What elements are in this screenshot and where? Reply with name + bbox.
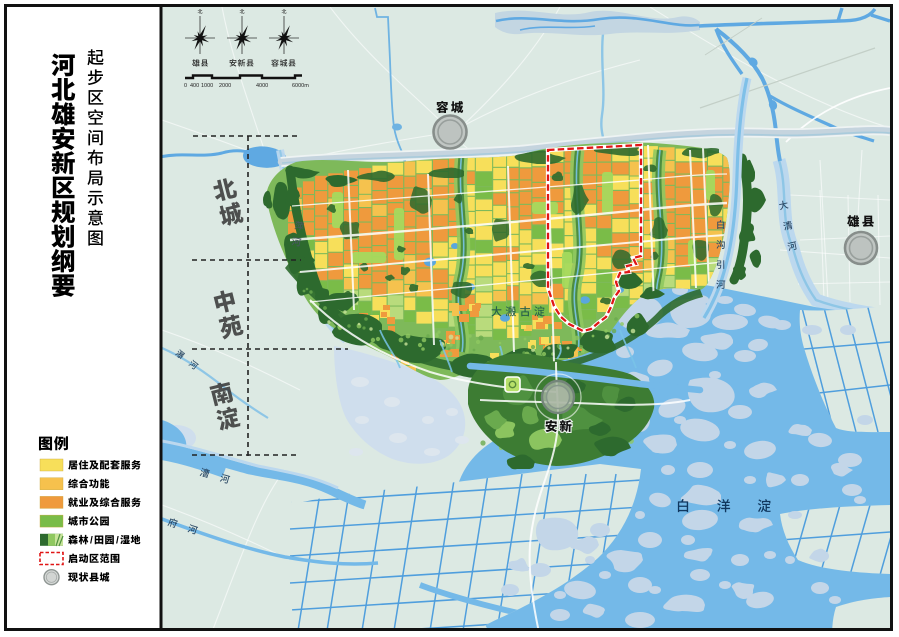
svg-text:/: / (116, 535, 119, 546)
svg-text:0: 0 (184, 83, 187, 89)
svg-text:6000m: 6000m (292, 83, 309, 89)
svg-text:4000: 4000 (256, 83, 268, 89)
svg-text:/: / (90, 535, 93, 546)
svg-text:1000: 1000 (201, 83, 213, 89)
svg-text:2000: 2000 (219, 83, 231, 89)
svg-text:400: 400 (190, 83, 199, 89)
